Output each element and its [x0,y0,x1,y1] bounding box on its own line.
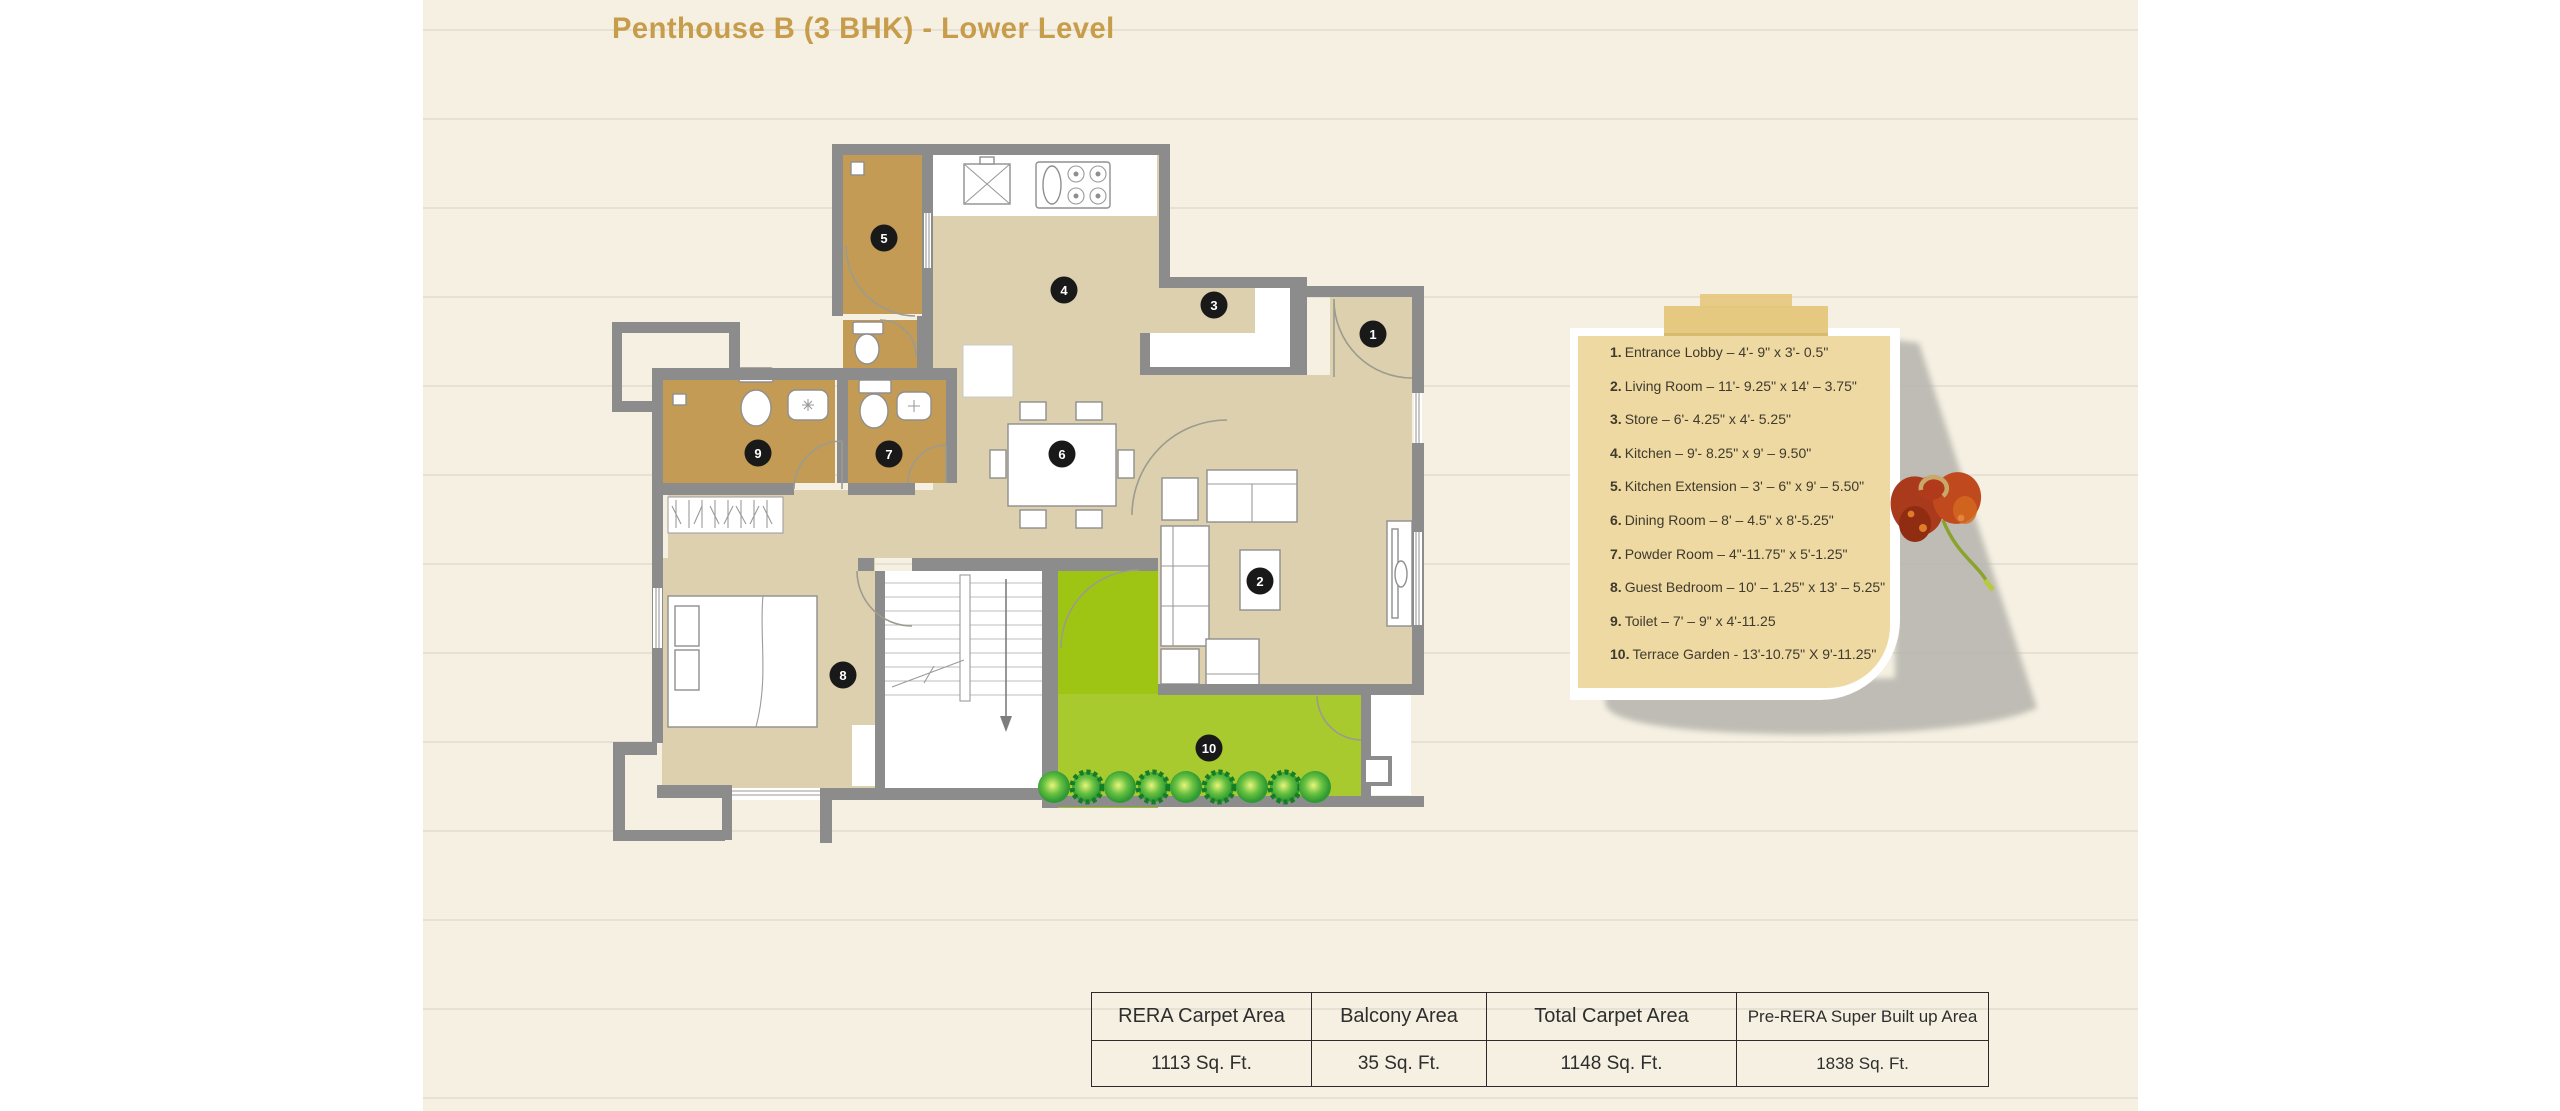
legend-item-number: 2. [1610,378,1622,394]
room-badge: 10 [1196,735,1223,762]
svg-text:3: 3 [1210,298,1217,313]
bush-icon [1299,771,1331,803]
floor-plan: 12345678910 [612,138,1442,858]
page-title: Penthouse B (3 BHK) - Lower Level [612,12,1115,46]
table-header-cell: Balcony Area [1312,993,1487,1041]
room-badge: 7 [876,441,903,468]
table-value-cell: 1113 Sq. Ft. [1092,1041,1312,1087]
room-badge: 5 [871,225,898,252]
table-header-cell: Total Carpet Area [1487,993,1737,1041]
legend-item: 6.Dining Room – 8' – 4.5" x 8'-5.25" [1610,512,1885,546]
svg-text:7: 7 [885,447,892,462]
legend-item: 1.Entrance Lobby – 4'- 9" x 3'- 0.5" [1610,344,1885,378]
bed [668,596,817,727]
tv-unit [1387,521,1412,626]
toilet-icon [859,380,891,428]
table-header-cell: Pre-RERA Super Built up Area [1737,993,1989,1041]
legend-item-text: Entrance Lobby – 4'- 9" x 3'- 0.5" [1625,344,1829,360]
bush-icon [1204,772,1234,802]
legend-item-number: 8. [1610,579,1622,595]
room-badge: 2 [1247,568,1274,595]
bush-icon [1072,772,1102,802]
legend-item: 10.Terrace Garden - 13'-10.75" X 9'-11.2… [1610,646,1885,680]
legend-item-text: Terrace Garden - 13'-10.75" X 9'-11.25" [1632,646,1876,662]
legend-item-text: Living Room – 11'- 9.25" x 14' – 3.75" [1625,378,1857,394]
legend-item-number: 9. [1610,613,1622,629]
area-table: RERA Carpet AreaBalcony AreaTotal Carpet… [1091,992,1989,1087]
legend-note: 1.Entrance Lobby – 4'- 9" x 3'- 0.5"2.Li… [1563,288,2083,768]
legend-item: 4.Kitchen – 9'- 8.25" x 9' – 9.50" [1610,445,1885,479]
bush-icon [1236,771,1268,803]
svg-text:10: 10 [1202,741,1216,756]
svg-text:5: 5 [880,231,887,246]
legend-item-text: Store – 6'- 4.25" x 4'- 5.25" [1625,411,1791,427]
legend-item-text: Kitchen Extension – 3' – 6" x 9' – 5.50" [1625,478,1864,494]
room-badge: 4 [1051,277,1078,304]
legend-item-number: 4. [1610,445,1622,461]
window-icon [1414,532,1422,625]
bush-icon [1170,771,1202,803]
svg-text:4: 4 [1060,283,1068,298]
fixture-icon [673,394,686,405]
window-icon [653,588,662,648]
svg-text:9: 9 [754,446,761,461]
bush-icon [1270,772,1300,802]
legend-item-number: 3. [1610,411,1622,427]
legend-item-text: Guest Bedroom – 10' – 1.25" x 13' – 5.25… [1625,579,1885,595]
svg-text:1: 1 [1369,327,1376,342]
bush-icon [1104,771,1136,803]
legend-item-number: 6. [1610,512,1622,528]
table-value-cell: 35 Sq. Ft. [1312,1041,1487,1087]
legend-item: 3.Store – 6'- 4.25" x 4'- 5.25" [1610,411,1885,445]
bush-icon [1038,771,1070,803]
svg-text:8: 8 [839,668,846,683]
legend-item-text: Toilet – 7' – 9" x 4'-11.25 [1625,613,1776,629]
hob-icon [1036,162,1110,208]
sheet-background: Penthouse B (3 BHK) - Lower Level [423,0,2138,1111]
legend-item: 2.Living Room – 11'- 9.25" x 14' – 3.75" [1610,378,1885,412]
legend-item: 9.Toilet – 7' – 9" x 4'-11.25 [1610,613,1885,647]
bush-icon [1138,772,1168,802]
room-badge: 3 [1201,292,1228,319]
legend-item: 5.Kitchen Extension – 3' – 6" x 9' – 5.5… [1610,478,1885,512]
legend-item-text: Powder Room – 4"-11.75" x 5'-1.25" [1625,546,1848,562]
window-icon [732,788,820,800]
table-header-cell: RERA Carpet Area [1092,993,1312,1041]
room-badge: 8 [830,662,857,689]
washbasin-icon [897,392,931,420]
svg-text:6: 6 [1058,447,1065,462]
room-badge: 1 [1360,321,1387,348]
window-icon [1414,393,1422,443]
window-icon [924,213,931,268]
legend-item-text: Dining Room – 8' – 4.5" x 8'-5.25" [1625,512,1834,528]
terrace-bushes [1038,771,1331,803]
table-value-cell: 1838 Sq. Ft. [1737,1041,1989,1087]
table-value-cell: 1148 Sq. Ft. [1487,1041,1737,1087]
svg-text:2: 2 [1256,574,1263,589]
geyser-icon [851,162,864,175]
dried-flower-icon [1885,458,2005,598]
kitchen-sink-icon [964,157,1010,204]
room-badge: 9 [745,440,772,467]
legend-item-number: 7. [1610,546,1622,562]
legend-item-number: 5. [1610,478,1622,494]
legend-item-text: Kitchen – 9'- 8.25" x 9' – 9.50" [1625,445,1812,461]
legend-item-number: 10. [1610,646,1629,662]
washbasin-icon [788,390,828,420]
legend-item-number: 1. [1610,344,1622,360]
legend-item: 8.Guest Bedroom – 10' – 1.25" x 13' – 5.… [1610,579,1885,613]
room-badge: 6 [1049,441,1076,468]
tape-icon [1664,306,1828,336]
legend-item: 7.Powder Room – 4"-11.75" x 5'-1.25" [1610,546,1885,580]
room-legend: 1.Entrance Lobby – 4'- 9" x 3'- 0.5"2.Li… [1610,344,1885,680]
